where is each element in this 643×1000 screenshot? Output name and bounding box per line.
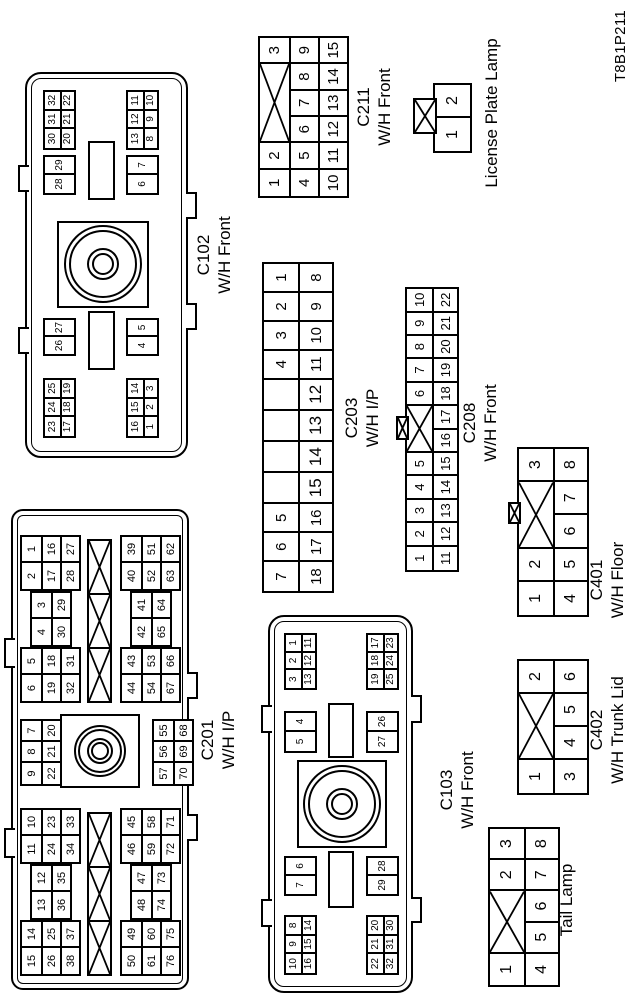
pin-number: 8 — [533, 839, 551, 848]
pin-cell: 32 — [62, 675, 79, 701]
connector-c401: 12345678 — [517, 447, 589, 617]
pin-block-row: 1312 — [32, 866, 51, 918]
pin-cell: 20 — [43, 721, 60, 742]
pin-cell: 4 — [286, 713, 315, 732]
bolt-hole-housing — [57, 221, 149, 308]
connector-label: C211W/H Front — [353, 68, 395, 145]
pin-block: 191817252423 — [366, 633, 399, 690]
mount-tab — [18, 165, 29, 192]
keyway-x-cell — [89, 595, 110, 649]
pin-number: 2 — [266, 151, 283, 159]
pin-cell: 18 — [300, 562, 332, 591]
connector-label-line: W/H I/P — [362, 389, 383, 448]
pin-block-row: 3231 — [60, 649, 79, 701]
pin-number: 32 — [385, 958, 396, 969]
pin-cell: 2 — [407, 523, 432, 546]
pin-block-row: 2423 — [41, 810, 60, 862]
pin-number: 4 — [36, 629, 48, 635]
pin-number: 5 — [412, 460, 427, 467]
pin-block-row: 1918 — [41, 649, 60, 701]
connector-label: C208W/H Front — [459, 384, 501, 461]
pin-number: 2 — [412, 530, 427, 537]
pin-block-row: 1716 — [41, 537, 60, 589]
pin-cell: 10 — [300, 322, 332, 351]
pin-number: 18 — [438, 386, 453, 400]
pin-block-row: 303132 — [45, 92, 60, 148]
connector-label-line: C203 — [341, 389, 362, 448]
bolt-hole-ring — [92, 254, 114, 276]
bolt-hole-housing — [60, 714, 140, 788]
connector-label-line: C401 — [586, 542, 607, 619]
pin-number: 28 — [377, 860, 388, 871]
pin-number: 3 — [36, 602, 48, 608]
pin-cell: 61 — [143, 948, 160, 974]
pin-number: 22 — [438, 293, 453, 307]
pin-block: 67 — [126, 155, 159, 195]
pin-block-row: 2726 — [368, 713, 397, 751]
connector-c211: 123456789101112131415 — [258, 36, 349, 198]
mount-tab — [4, 828, 15, 858]
pin-block-row: 7473 — [151, 866, 170, 918]
pin-number: 8 — [562, 460, 580, 469]
pin-cell: 5 — [555, 549, 587, 582]
pin-number: 16 — [438, 433, 453, 447]
pin-cell: 6 — [264, 533, 298, 562]
pin-cell: 15 — [434, 453, 457, 476]
pin-number: 41 — [136, 599, 148, 611]
pin-number: 7 — [295, 882, 306, 888]
pin-number: 16 — [130, 421, 141, 432]
pin-cell: 12 — [434, 523, 457, 546]
pin-number: 5 — [26, 658, 38, 664]
pin-number: 15 — [130, 401, 141, 412]
pin-cell: 30 — [53, 619, 70, 645]
pin-cell: 20 — [368, 917, 383, 936]
pin-cell: 20 — [62, 129, 75, 148]
pin-number: 28 — [54, 178, 65, 189]
pin-cell: 39 — [122, 537, 141, 563]
connector-label-line: W/H Front — [480, 384, 501, 461]
pin-cell: 16 — [303, 954, 316, 973]
pin-row: 7654321 — [264, 264, 298, 591]
pin-number: 21 — [370, 938, 381, 949]
pin-cell: 14 — [128, 380, 143, 399]
pin-cell: 63 — [162, 563, 179, 589]
pin-number: 75 — [165, 928, 177, 940]
pin-cell: 8 — [555, 449, 587, 482]
pin-cell: 74 — [153, 892, 170, 918]
pin-cell: 12 — [303, 653, 316, 671]
pin-number: 48 — [136, 899, 148, 911]
pin-cell: 6 — [526, 891, 558, 922]
pin-number: 49 — [126, 928, 138, 940]
connector-label: C402W/H Trunk Lid — [586, 676, 628, 784]
pin-block: 2928 — [366, 856, 399, 896]
pin-cell: 47 — [132, 866, 151, 892]
pin-block-row: 131211 — [128, 92, 143, 148]
pin-number: 2 — [527, 560, 545, 569]
pin-block-row: 1514 — [22, 922, 41, 974]
pin-cell: 13 — [32, 892, 51, 918]
pin-cell: 13 — [434, 500, 457, 523]
pin-cell: 6 — [555, 661, 587, 694]
pin-number: 4 — [562, 738, 580, 747]
keyway-x-cell — [490, 891, 524, 953]
pin-number: 76 — [165, 955, 177, 967]
pin-number: 18 — [370, 655, 381, 666]
pin-cell: 27 — [62, 537, 79, 563]
pin-number: 14 — [130, 383, 141, 394]
blank-slot — [88, 141, 115, 200]
pin-row: 111213141516171819202122 — [432, 289, 457, 570]
pin-cell: 14 — [300, 442, 332, 473]
connector-label: C201W/H I/P — [197, 711, 239, 770]
pin-number: 1 — [145, 424, 156, 430]
pin-cell: 22 — [434, 289, 457, 312]
pin-number: 2 — [26, 573, 38, 579]
pin-number: 14 — [306, 447, 326, 466]
pin-cell: 9 — [22, 763, 41, 784]
pin-cell: 24 — [45, 399, 60, 418]
pin-cell: 31 — [45, 111, 60, 130]
pin-block: 403952516362 — [120, 535, 181, 591]
pin-number: 25 — [46, 928, 58, 940]
pin-number: 1 — [527, 594, 545, 603]
pin-number: 6 — [137, 181, 148, 187]
pin-cell: 68 — [175, 721, 192, 742]
pin-block: 464559587271 — [120, 808, 181, 864]
mount-tab — [187, 672, 198, 699]
pin-block-row: 54 — [286, 713, 315, 751]
pin-block-row: 323130 — [383, 917, 398, 973]
pin-number: 3 — [288, 676, 299, 682]
pin-block-row: 131211 — [301, 635, 316, 688]
pin-block-row: 5958 — [141, 810, 160, 862]
pin-cell: 2 — [286, 653, 301, 671]
pin-number: 20 — [370, 920, 381, 931]
pin-number: 15 — [325, 42, 342, 59]
pin-block-row: 252423 — [383, 635, 398, 688]
pin-number: 14 — [325, 68, 342, 85]
pin-block-row: 43 — [32, 593, 51, 645]
connector-license: 12 — [433, 83, 472, 153]
connector-label-line: C211 — [353, 68, 374, 145]
pin-number: 18 — [62, 401, 73, 412]
pin-cell: 2 — [260, 143, 289, 169]
pin-cell: 8 — [526, 829, 558, 860]
pin-cell: 25 — [43, 922, 60, 948]
pin-block-row: 3635 — [51, 866, 70, 918]
pin-block-row: 706968 — [173, 721, 192, 784]
pin-block: 232425171819 — [43, 378, 76, 438]
pin-cell: 10 — [286, 954, 301, 973]
pin-cell: 43 — [122, 649, 141, 675]
pin-number: 23 — [46, 816, 58, 828]
mount-tab — [411, 695, 422, 723]
pin-number: 19 — [62, 383, 73, 394]
pin-cell: 1 — [435, 118, 470, 151]
keyway-notch — [413, 98, 437, 134]
pin-cell: 3 — [32, 593, 51, 619]
pin-number: 13 — [130, 133, 141, 144]
pin-number: 35 — [56, 872, 68, 884]
pin-cell: 3 — [264, 322, 298, 351]
pin-cell: 31 — [385, 936, 398, 955]
connector-c208: 12345678910111213141516171819202122 — [405, 287, 459, 572]
pin-number: 4 — [412, 483, 427, 490]
pin-cell: 14 — [22, 922, 41, 948]
pin-number: 56 — [158, 745, 170, 757]
pin-cell: 4 — [555, 727, 587, 760]
pin-cell: 12 — [32, 866, 51, 892]
pin-cell: 16 — [434, 430, 457, 453]
pin-block-row: 76 — [286, 858, 315, 894]
pin-cell: 3 — [555, 760, 587, 793]
connector-label: C401W/H Floor — [586, 542, 628, 619]
blank-slot — [328, 703, 354, 758]
pin-cell: 27 — [45, 320, 74, 337]
pin-cell: 64 — [153, 593, 170, 619]
pin-cell: 30 — [45, 129, 60, 148]
pin-cell: 18 — [62, 399, 75, 418]
mount-tab — [186, 192, 197, 219]
pin-cell: 49 — [122, 922, 141, 948]
pin-block: 76 — [284, 856, 317, 896]
pin-cell: 44 — [122, 675, 141, 701]
pin-cell: 22 — [43, 763, 60, 784]
pin-number: 13 — [306, 416, 326, 435]
pin-cell: 26 — [45, 337, 74, 354]
pin-number: 53 — [146, 655, 158, 667]
pin-cell: 19 — [368, 670, 383, 688]
pin-block-row: 5049 — [122, 922, 141, 974]
pin-block: 222120323130 — [366, 915, 399, 975]
pin-number: 2 — [527, 672, 545, 681]
pin-cell: 3 — [145, 380, 158, 399]
pin-number: 27 — [54, 322, 65, 333]
pin-cell: 22 — [368, 954, 383, 973]
pin-block: 987222120 — [20, 719, 62, 786]
pin-cell: 21 — [368, 936, 383, 955]
pin-cell: 10 — [22, 810, 41, 836]
pin-number: 71 — [165, 816, 177, 828]
pin-number: 13 — [303, 674, 314, 685]
pin-cell: 7 — [291, 91, 318, 117]
keyway-x-cell — [407, 406, 432, 453]
pin-block-row: 2625 — [41, 922, 60, 974]
pin-block: 1312118910 — [126, 90, 159, 150]
mount-tab — [187, 814, 198, 841]
pin-cell: 2 — [22, 563, 41, 589]
pin-cell: 55 — [154, 721, 173, 742]
pin-number: 7 — [412, 366, 427, 373]
pin-number: 58 — [146, 816, 158, 828]
pin-cell: 28 — [368, 858, 397, 876]
pin-cell: 3 — [407, 500, 432, 523]
pin-number: 20 — [62, 133, 73, 144]
pin-number: 8 — [26, 748, 38, 754]
pin-cell: 48 — [132, 892, 151, 918]
pin-block: 6519183231 — [20, 647, 81, 703]
pin-number: 2 — [444, 96, 462, 105]
pin-cell: 14 — [303, 917, 316, 936]
pin-cell: 5 — [407, 453, 432, 476]
pin-cell: 65 — [153, 619, 170, 645]
connector-label: C103W/H Front — [436, 751, 478, 828]
pin-cell: 5 — [291, 143, 318, 169]
pin-number: 20 — [46, 724, 58, 736]
pin-number: 10 — [26, 816, 38, 828]
pin-number: 5 — [137, 325, 148, 331]
keyway-x-cell — [519, 694, 553, 760]
pin-number: 11 — [130, 95, 141, 105]
blank-cell — [264, 473, 298, 504]
connector-label-line: C402 — [586, 676, 607, 784]
pin-cell: 41 — [132, 593, 151, 619]
pin-cell: 12 — [128, 111, 143, 130]
pin-cell: 23 — [385, 635, 398, 653]
pin-number: 3 — [527, 460, 545, 469]
pin-cell: 57 — [154, 763, 173, 784]
pin-cell: 15 — [128, 399, 143, 418]
pin-cell: 71 — [162, 810, 179, 836]
pin-cell: 13 — [320, 91, 347, 117]
pin-number: 17 — [46, 570, 58, 582]
pin-cell: 52 — [143, 563, 160, 589]
connector-label-line: License Plate Lamp — [481, 38, 502, 187]
pin-cell: 23 — [45, 417, 60, 436]
pin-cell: 11 — [22, 836, 41, 862]
pin-number: 14 — [26, 928, 38, 940]
pin-cell: 10 — [145, 92, 158, 111]
pin-block: 54 — [284, 711, 317, 753]
mount-tab — [261, 705, 272, 733]
pin-row: 456789 — [289, 38, 318, 196]
pin-number: 7 — [296, 99, 313, 107]
pin-cell: 1 — [490, 954, 524, 985]
pin-number: 2 — [145, 404, 156, 410]
pin-cell: 11 — [300, 351, 332, 380]
connector-c201: 1514262538371312363511102423343350496160… — [11, 509, 189, 990]
pin-number: 29 — [54, 159, 65, 170]
pin-number: 2 — [273, 302, 290, 310]
pin-block-row: 161514 — [301, 917, 316, 973]
pin-number: 5 — [296, 151, 313, 159]
pin-number: 67 — [165, 682, 177, 694]
pin-number: 15 — [306, 478, 326, 497]
pin-cell: 15 — [320, 38, 347, 64]
pin-number: 6 — [412, 390, 427, 397]
pin-cell: 28 — [45, 175, 74, 193]
pin-block: 2627 — [43, 318, 76, 356]
pin-cell: 75 — [162, 922, 179, 948]
pin-number: 16 — [303, 958, 314, 969]
pin-cell: 2 — [519, 549, 553, 582]
pin-number: 60 — [146, 928, 158, 940]
pin-cell: 21 — [62, 111, 75, 130]
pin-cell: 15 — [300, 473, 332, 504]
mount-tab — [261, 899, 272, 927]
pin-cell: 7 — [128, 157, 157, 175]
pin-cell: 27 — [368, 732, 397, 751]
wiring-diagram-stage: T8B1P211 1514262538371312363511102423343… — [0, 0, 643, 1000]
pin-cell: 8 — [286, 917, 301, 936]
pin-number: 2 — [288, 658, 299, 664]
pin-number: 7 — [273, 572, 290, 580]
pin-number: 45 — [126, 816, 138, 828]
pin-cell: 4 — [526, 954, 558, 985]
pin-row: 12 — [435, 85, 470, 151]
bolt-hole-ring — [91, 742, 109, 760]
pin-cell: 3 — [490, 829, 524, 860]
pin-cell: 8 — [300, 264, 332, 293]
pin-cell: 46 — [122, 836, 141, 862]
pin-number: 40 — [126, 570, 138, 582]
pin-cell: 7 — [286, 876, 315, 894]
pin-cell: 9 — [300, 293, 332, 322]
pin-cell: 9 — [291, 38, 318, 64]
pin-cell: 38 — [62, 948, 79, 974]
pin-cell: 36 — [53, 892, 70, 918]
pin-number: 66 — [165, 655, 177, 667]
pin-cell: 6 — [286, 858, 315, 876]
pin-number: 26 — [46, 955, 58, 967]
pin-cell: 4 — [291, 170, 318, 196]
pin-block-row: 3837 — [60, 922, 79, 974]
pin-number: 6 — [26, 685, 38, 691]
mount-tab — [186, 303, 197, 330]
keyway-strip — [87, 812, 112, 976]
pin-number: 6 — [273, 543, 290, 551]
pin-cell: 18 — [368, 653, 383, 671]
pin-cell: 24 — [385, 653, 398, 671]
pin-number: 28 — [65, 570, 77, 582]
pin-cell: 25 — [385, 670, 398, 688]
pin-number: 12 — [306, 385, 326, 404]
pin-number: 37 — [65, 928, 77, 940]
pin-number: 9 — [296, 46, 313, 54]
pin-row: 123 — [519, 449, 553, 615]
pin-number: 22 — [62, 95, 73, 106]
pin-number: 2 — [498, 870, 516, 879]
pin-block-row: 1098 — [286, 917, 301, 973]
connector-label-line: C201 — [197, 711, 218, 770]
pin-cell: 10 — [407, 289, 432, 312]
pin-number: 5 — [562, 560, 580, 569]
pin-cell: 72 — [162, 836, 179, 862]
pin-cell: 1 — [286, 635, 301, 653]
pin-number: 38 — [65, 955, 77, 967]
pin-cell: 11 — [320, 143, 347, 169]
pin-cell: 35 — [53, 866, 70, 892]
pin-cell: 6 — [291, 117, 318, 143]
pin-cell: 21 — [43, 742, 60, 763]
pin-number: 65 — [156, 626, 168, 638]
pin-block-row: 321 — [286, 635, 301, 688]
pin-number: 29 — [56, 599, 68, 611]
pin-cell: 9 — [286, 936, 301, 955]
pin-cell: 42 — [132, 619, 151, 645]
pin-number: 1 — [288, 640, 299, 646]
pin-number: 42 — [136, 626, 148, 638]
connector-label-line: W/H I/P — [218, 711, 239, 770]
pin-block: 151426253837 — [20, 920, 81, 976]
connector-label: Tail Lamp — [556, 864, 577, 937]
pin-number: 4 — [296, 179, 313, 187]
pin-cell: 45 — [122, 810, 141, 836]
pin-cell: 3 — [519, 449, 553, 482]
pin-row: 18171615141312111098 — [298, 264, 332, 591]
